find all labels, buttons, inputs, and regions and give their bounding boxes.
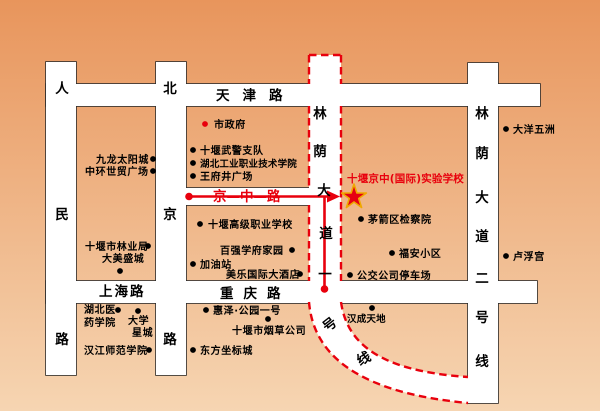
road-label-chongqing: 重庆路 [220, 285, 291, 302]
poi-label: 美乐国际大酒店 [226, 268, 300, 281]
poi-label: 星城 [132, 326, 153, 339]
svg-text:北: 北 [163, 81, 177, 97]
poi-label: 大学 [128, 314, 149, 327]
poi-dot [145, 243, 151, 249]
poi-dot [197, 221, 203, 227]
poi-dot [503, 126, 509, 132]
poi-label: 市政府 [214, 118, 246, 131]
svg-text:林: 林 [475, 105, 489, 122]
poi-label: 湖北工业职业技术学院 [200, 158, 297, 170]
poi-dot [190, 173, 196, 179]
svg-text:一: 一 [318, 267, 332, 283]
svg-text:二: 二 [475, 271, 489, 287]
svg-text:林: 林 [313, 105, 327, 122]
poi-dot [117, 268, 123, 274]
poi-label: 中环世贸广场 [85, 165, 149, 178]
poi-label: 汉成天地 [347, 313, 386, 325]
poi-label: 大美盛城 [102, 252, 144, 265]
poi-dot [115, 307, 121, 313]
svg-text:荫: 荫 [313, 143, 327, 160]
route-end-dot [321, 285, 329, 293]
route-start-dot [185, 193, 193, 201]
poi-label: 东方坐标城 [200, 344, 253, 357]
svg-text:京: 京 [163, 206, 177, 223]
poi-label: 湖北医 [84, 303, 116, 316]
poi-label: 王府井广场 [200, 170, 253, 183]
poi-dot [297, 271, 303, 277]
svg-text:人: 人 [55, 81, 69, 97]
poi-dot [146, 347, 152, 353]
poi-dot [265, 316, 271, 322]
svg-text:线: 线 [475, 353, 489, 370]
poi-label: 卢浮宫 [513, 250, 545, 263]
poi-dot [190, 261, 196, 267]
road-label-tianjin: 天津路 [216, 87, 296, 104]
city-map: 京—中—路 十堰京中(国际)实验学校 天津路 上海路 重庆路 人 民 路 北 京… [0, 0, 600, 411]
poi-dot-red [202, 121, 208, 127]
svg-text:路: 路 [163, 331, 177, 348]
poi-dot [503, 253, 509, 259]
poi-label: 大洋五洲 [513, 123, 555, 136]
poi-dot [150, 156, 156, 162]
route-label: 京—中—路 [213, 188, 281, 205]
poi-label: 百强学府家园 [220, 244, 284, 257]
map-canvas: 京—中—路 十堰京中(国际)实验学校 天津路 上海路 重庆路 人 民 路 北 京… [0, 0, 600, 411]
svg-text:路: 路 [55, 331, 69, 348]
poi-label: 十堰市林业局 [85, 240, 149, 253]
poi-dot [369, 305, 375, 311]
poi-label: 十堰武警支队 [200, 144, 264, 157]
poi-label: 汉江师范学院 [84, 344, 148, 357]
svg-text:民: 民 [55, 207, 69, 223]
svg-text:大: 大 [317, 182, 331, 199]
poi-label: 惠泽·公园一号 [213, 304, 281, 317]
svg-text:号: 号 [475, 310, 489, 326]
poi-dot [347, 272, 353, 278]
road-label-shanghai: 上海路 [99, 283, 146, 300]
poi-label: 十堰高级职业学校 [208, 218, 293, 231]
svg-text:道: 道 [319, 225, 333, 242]
poi-dot [203, 307, 209, 313]
poi-label: 十堰市烟草公司 [232, 324, 306, 337]
svg-text:道: 道 [475, 228, 489, 245]
poi-dot [358, 216, 364, 222]
poi-dot [289, 247, 295, 253]
poi-label: 九龙太阳城 [95, 153, 149, 166]
poi-label: 福安小区 [398, 247, 441, 260]
svg-text:大: 大 [475, 189, 489, 206]
poi-label: 茅箭区检察院 [368, 213, 432, 226]
poi-dot [150, 168, 156, 174]
poi-dot [135, 308, 141, 314]
poi-label: 药学院 [84, 316, 116, 329]
school-name-label: 十堰京中(国际)实验学校 [347, 172, 464, 185]
svg-text:荫: 荫 [475, 145, 489, 162]
poi-label: 公交公司停车场 [357, 269, 431, 282]
poi-dot [190, 147, 196, 153]
poi-dot [190, 160, 196, 166]
poi-dot [190, 347, 196, 353]
poi-dot [389, 250, 395, 256]
